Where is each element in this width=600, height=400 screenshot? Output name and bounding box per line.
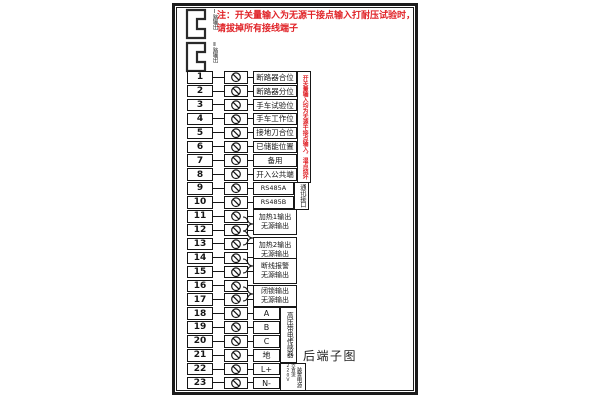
wire-segment — [213, 382, 224, 383]
terminal-label: 断路器合位 — [253, 71, 297, 84]
output-group-line1: 加热1输出 — [259, 213, 291, 222]
side-warning-box: 开关量输入均为无源干接点输入，湿点烧坏 — [297, 71, 311, 183]
screw-terminal — [224, 141, 248, 154]
terminal-label: 接地刀合位 — [253, 127, 297, 140]
wire-segment — [213, 299, 224, 300]
terminal-number: 3 — [187, 99, 213, 112]
plug-connector-1 — [185, 8, 209, 40]
plug-connector-2 — [185, 41, 209, 73]
table-row: 5 接地刀合位 — [187, 127, 307, 141]
screw-icon — [225, 128, 247, 139]
output-group-lockout: 闭锁输出 无源输出 — [253, 285, 297, 307]
screw-terminal — [224, 182, 248, 195]
table-row: 10 RS485B — [187, 196, 307, 210]
table-row: 3 手车试验位 — [187, 99, 307, 113]
screw-icon — [225, 183, 247, 194]
screw-terminal — [224, 127, 248, 140]
terminal-number: 13 — [187, 238, 213, 251]
output-group-line2: 无源输出 — [261, 222, 289, 231]
screw-terminal — [224, 377, 248, 390]
table-row: 6 已储能位置 — [187, 141, 307, 155]
screw-terminal — [224, 321, 248, 334]
terminal-number: 7 — [187, 154, 213, 167]
terminal-label: RS485A — [253, 182, 294, 195]
wire-segment — [213, 77, 224, 78]
screw-icon — [225, 155, 247, 166]
terminal-label: N- — [253, 377, 280, 390]
screw-terminal — [224, 99, 248, 112]
terminal-label: 手车试验位 — [253, 99, 297, 112]
terminal-label: L+ — [253, 363, 280, 376]
screw-terminal — [224, 335, 248, 348]
screw-terminal — [224, 196, 248, 209]
terminal-number: 8 — [187, 168, 213, 181]
power-rating-label: 交直流220V — [285, 364, 295, 390]
terminal-label: 地 — [253, 349, 280, 362]
table-row: 8 开入公共端 — [187, 168, 307, 182]
terminal-number: 10 — [187, 196, 213, 209]
hv-sensor-box: 高压带电传感器 — [280, 307, 297, 363]
wire-segment — [213, 327, 224, 328]
plug-icon — [185, 41, 209, 73]
screw-icon — [225, 197, 247, 208]
terminal-label: 手车工作位 — [253, 113, 297, 126]
comm-port-label: 通讯接口 — [298, 184, 305, 208]
screw-terminal — [224, 113, 248, 126]
screw-terminal — [224, 363, 248, 376]
screw-terminal — [224, 349, 248, 362]
terminal-number: 4 — [187, 113, 213, 126]
table-row: 4 手车工作位 — [187, 113, 307, 127]
terminal-label: 断路器分位 — [253, 85, 297, 98]
screw-icon — [225, 336, 247, 347]
wire-segment — [213, 91, 224, 92]
terminal-number: 23 — [187, 377, 213, 390]
wire-segment — [213, 118, 224, 119]
terminal-number: 17 — [187, 293, 213, 306]
screw-icon — [225, 364, 247, 375]
screw-icon — [225, 86, 247, 97]
screw-terminal — [224, 154, 248, 167]
wire-segment — [213, 271, 224, 272]
terminal-label: 开入公共端 — [253, 168, 297, 181]
terminal-number: 20 — [187, 335, 213, 348]
wire-segment — [213, 313, 224, 314]
screw-icon — [225, 322, 247, 333]
screw-icon — [225, 378, 247, 389]
output-group-line1: 加热2输出 — [259, 241, 291, 250]
device-power-box: 交直流220V 装置电源 — [280, 363, 306, 391]
output-group-heater1: 加热1输出 无源输出 — [253, 209, 297, 235]
wire-segment — [213, 146, 224, 147]
wire-segment — [213, 341, 224, 342]
terminal-label: 备用 — [253, 154, 297, 167]
screw-terminal — [224, 168, 248, 181]
terminal-number: 11 — [187, 210, 213, 223]
pair-bracket-16-17 — [243, 286, 253, 302]
terminal-label: A — [253, 307, 280, 320]
terminal-number: 19 — [187, 321, 213, 334]
terminal-number: 5 — [187, 127, 213, 140]
terminal-number: 1 — [187, 71, 213, 84]
output-group-line1: 断线报警 — [261, 262, 289, 271]
wire-segment — [213, 132, 224, 133]
table-row: 7 备用 — [187, 154, 307, 168]
wire-segment — [213, 369, 224, 370]
wire-segment — [213, 230, 224, 231]
diagram-title: 后端子图 — [303, 347, 357, 364]
screw-icon — [225, 169, 247, 180]
terminal-number: 15 — [187, 266, 213, 279]
warning-note-line1: 注：开关量输入为无源干接点输入打耐压试验时， — [217, 10, 417, 23]
terminal-number: 6 — [187, 141, 213, 154]
pair-bracket-14-15 — [243, 258, 253, 274]
terminal-number: 14 — [187, 252, 213, 265]
wire-segment — [213, 188, 224, 189]
plug-2-label: Ⅱ路输出 — [211, 42, 217, 72]
screw-icon — [225, 72, 247, 83]
terminal-label: RS485B — [253, 196, 294, 209]
terminal-label: B — [253, 321, 280, 334]
table-row: 1 断路器合位 — [187, 71, 307, 85]
wire-segment — [213, 257, 224, 258]
wire-segment — [213, 160, 224, 161]
wire-segment — [213, 355, 224, 356]
plug-1-label: Ⅰ路输出 — [211, 9, 217, 39]
terminal-number: 9 — [187, 182, 213, 195]
screw-icon — [225, 100, 247, 111]
wire-segment — [213, 216, 224, 217]
screw-terminal — [224, 85, 248, 98]
terminal-number: 18 — [187, 307, 213, 320]
wire-segment — [213, 202, 224, 203]
rear-terminal-diagram-page: Ⅰ路输出 Ⅱ路输出 注：开关量输入为无源干接点输入打耐压试验时， 请拔掉所有接线… — [0, 0, 600, 400]
terminal-number: 22 — [187, 363, 213, 376]
terminal-number: 12 — [187, 224, 213, 237]
output-group-line2: 无源输出 — [261, 271, 289, 280]
wire-segment — [213, 104, 224, 105]
screw-icon — [225, 114, 247, 125]
wire-segment — [213, 285, 224, 286]
output-group-line1: 闭锁输出 — [261, 287, 289, 296]
terminal-number: 16 — [187, 280, 213, 293]
comm-port-box: 通讯接口 — [294, 182, 309, 210]
pair-bracket-12-13 — [243, 230, 253, 246]
output-group-wirebreak-alarm: 断线报警 无源输出 — [253, 258, 297, 284]
screw-terminal — [224, 307, 248, 320]
table-row: 2 断路器分位 — [187, 85, 307, 99]
warning-note: 注：开关量输入为无源干接点输入打耐压试验时， 请拔掉所有接线端子 — [217, 10, 417, 36]
screw-icon — [225, 142, 247, 153]
warning-note-line2: 请拔掉所有接线端子 — [217, 23, 417, 36]
output-group-line2: 无源输出 — [261, 296, 289, 305]
screw-icon — [225, 350, 247, 361]
power-name-label: 装置电源 — [295, 367, 301, 388]
terminal-label: 已储能位置 — [253, 141, 297, 154]
hv-sensor-label: 高压带电传感器 — [285, 312, 292, 358]
terminal-label: C — [253, 335, 280, 348]
plug-icon — [185, 8, 209, 40]
screw-terminal — [224, 71, 248, 84]
terminal-number: 21 — [187, 349, 213, 362]
side-warning-text: 开关量输入均为无源干接点输入，湿点烧坏 — [301, 75, 307, 180]
terminal-number: 2 — [187, 85, 213, 98]
table-row: 9 RS485A — [187, 182, 307, 196]
wire-segment — [213, 174, 224, 175]
wire-segment — [213, 243, 224, 244]
screw-icon — [225, 308, 247, 319]
